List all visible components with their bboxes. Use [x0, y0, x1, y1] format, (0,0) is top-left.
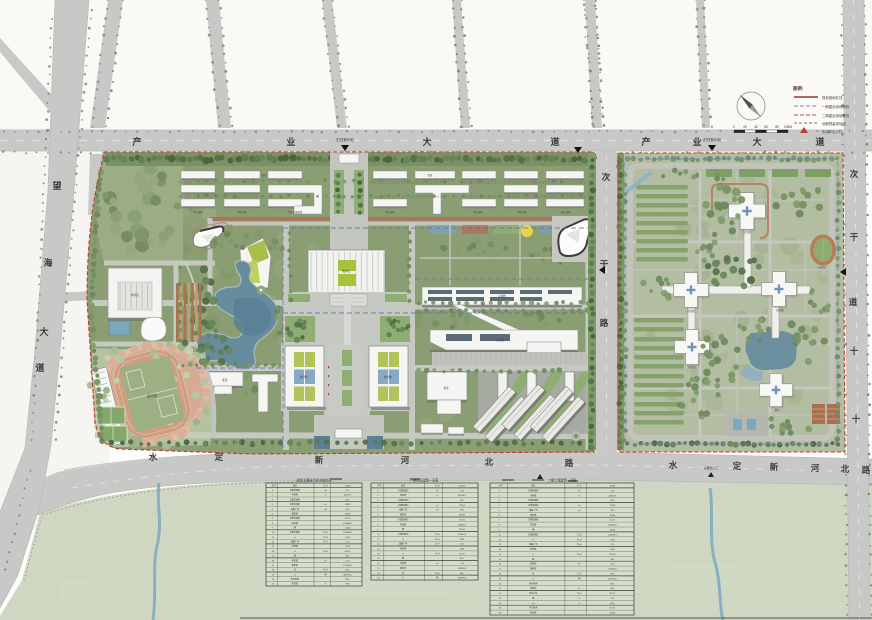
- svg-text:45678.9: 45678.9: [344, 495, 352, 497]
- svg-text:%: %: [436, 495, 438, 497]
- svg-text:食堂: 食堂: [775, 408, 780, 412]
- svg-text:85%: 85%: [460, 573, 464, 575]
- svg-text:北: 北: [841, 464, 850, 474]
- svg-text:m²: m²: [532, 602, 535, 605]
- svg-text:运动场: 运动场: [818, 265, 826, 269]
- svg-text:业: 业: [692, 136, 701, 147]
- svg-text:%: %: [402, 539, 404, 541]
- svg-text:12564: 12564: [459, 505, 466, 507]
- svg-text:路: 路: [600, 318, 609, 328]
- svg-text:宿舍楼: 宿舍楼: [687, 309, 695, 313]
- svg-text:%: %: [325, 495, 327, 497]
- svg-text:万m²: 万m²: [323, 536, 328, 539]
- svg-text:海: 海: [43, 257, 52, 268]
- svg-text:万m²: 万m²: [323, 541, 328, 544]
- svg-text:%: %: [402, 553, 404, 555]
- svg-text:56.2%: 56.2%: [345, 551, 351, 553]
- svg-text:学生宿舍: 学生宿舍: [517, 210, 527, 214]
- svg-text:%: %: [294, 537, 296, 539]
- svg-text:十: 十: [850, 346, 859, 356]
- svg-text:%: %: [578, 598, 580, 600]
- svg-text:56.2%: 56.2%: [609, 554, 615, 556]
- svg-text:(红线宽40米): (红线宽40米): [703, 137, 721, 142]
- svg-text:12564: 12564: [459, 529, 466, 531]
- svg-text:次: 次: [850, 169, 859, 179]
- svg-text:%: %: [532, 554, 534, 556]
- svg-text:35%: 35%: [610, 500, 614, 502]
- svg-text:56.2%: 56.2%: [459, 519, 465, 521]
- svg-text:体育馆: 体育馆: [131, 293, 139, 297]
- svg-text:河: 河: [811, 463, 820, 473]
- svg-text:食堂: 食堂: [443, 386, 449, 390]
- svg-text:12564: 12564: [345, 528, 352, 530]
- svg-text:%: %: [532, 539, 534, 541]
- svg-text:80: 80: [775, 125, 779, 129]
- svg-text:12564: 12564: [610, 613, 617, 615]
- svg-text:万m²: 万m²: [323, 484, 328, 487]
- svg-text:12564: 12564: [610, 515, 617, 517]
- svg-text:大: 大: [752, 136, 761, 147]
- svg-text:%: %: [578, 495, 580, 497]
- svg-text:水: 水: [148, 452, 158, 462]
- svg-text:m²: m²: [324, 508, 327, 511]
- svg-text:万m²: 万m²: [323, 569, 328, 572]
- svg-text:二期建设用地界线: 二期建设用地界线: [822, 113, 850, 118]
- svg-text:85%: 85%: [610, 603, 614, 605]
- svg-text:(红线宽50米): (红线宽50米): [336, 137, 354, 142]
- svg-text:m²: m²: [436, 489, 439, 492]
- svg-text:学生宿舍: 学生宿舍: [237, 210, 247, 214]
- svg-text:%: %: [402, 578, 404, 580]
- svg-text:实验楼: 实验楼: [496, 338, 504, 342]
- svg-text:12564: 12564: [459, 486, 466, 488]
- svg-text:北: 北: [485, 457, 494, 467]
- svg-text:m²: m²: [436, 509, 439, 512]
- svg-text:万m²: 万m²: [435, 543, 440, 546]
- svg-text:35%: 35%: [460, 510, 464, 512]
- svg-text:125648.5: 125648.5: [458, 568, 468, 570]
- svg-text:万m²: 万m²: [323, 531, 328, 534]
- svg-text:河: 河: [401, 455, 410, 465]
- svg-text:85%: 85%: [610, 583, 614, 585]
- svg-text:定: 定: [214, 452, 224, 462]
- svg-text:0: 0: [733, 125, 735, 129]
- svg-text:学生宿舍: 学生宿舍: [385, 210, 395, 214]
- svg-text:%: %: [578, 588, 580, 590]
- svg-text:产: 产: [132, 136, 141, 147]
- svg-text:万m²: 万m²: [435, 552, 440, 555]
- svg-text:12564: 12564: [345, 504, 352, 506]
- svg-text:35%: 35%: [346, 556, 350, 558]
- svg-text:56.2%: 56.2%: [345, 518, 351, 520]
- svg-text:125648.5: 125648.5: [608, 569, 618, 571]
- svg-text:二期工程建筑一览表: 二期工程建筑一览表: [548, 478, 577, 483]
- svg-text:85%: 85%: [346, 579, 350, 581]
- svg-text:一期建设用地界线: 一期建设用地界线: [822, 104, 850, 109]
- svg-text:新: 新: [315, 455, 324, 465]
- svg-text:35%: 35%: [610, 559, 614, 561]
- svg-text:125648.5: 125648.5: [458, 534, 468, 536]
- svg-text:m²: m²: [578, 504, 581, 507]
- svg-text:56.2%: 56.2%: [609, 520, 615, 522]
- svg-text:产: 产: [641, 136, 650, 147]
- svg-text:100M: 100M: [784, 125, 792, 129]
- svg-text:定: 定: [732, 461, 742, 471]
- svg-text:m²: m²: [578, 509, 581, 512]
- svg-text:教工宿舍: 教工宿舍: [561, 210, 571, 214]
- svg-text:万m²: 万m²: [577, 592, 582, 595]
- svg-text:万m²: 万m²: [435, 533, 440, 536]
- svg-text:m²: m²: [578, 489, 581, 492]
- svg-text:万m²: 万m²: [577, 485, 582, 488]
- svg-text:宿舍: 宿舍: [428, 173, 433, 177]
- svg-text:%: %: [532, 578, 534, 580]
- svg-text:万m²: 万m²: [435, 538, 440, 541]
- svg-text:60: 60: [764, 125, 768, 129]
- svg-text:12564: 12564: [610, 486, 617, 488]
- svg-text:%: %: [294, 551, 296, 553]
- svg-text:新: 新: [770, 462, 779, 472]
- svg-text:业: 业: [286, 136, 295, 147]
- svg-text:运动场: 运动场: [147, 393, 158, 398]
- svg-text:规划主要技术经济指标表: 规划主要技术经济指标表: [296, 478, 332, 483]
- svg-text:宿舍楼: 宿舍楼: [776, 308, 784, 312]
- svg-text:万m²: 万m²: [435, 572, 440, 575]
- svg-text:12564: 12564: [610, 530, 617, 532]
- svg-text:学生宿舍: 学生宿舍: [193, 210, 203, 214]
- svg-text:12564: 12564: [459, 515, 466, 517]
- svg-text:大: 大: [422, 136, 431, 147]
- svg-text:万m²: 万m²: [577, 553, 582, 556]
- svg-text:12564: 12564: [345, 514, 352, 516]
- svg-text:45678.9: 45678.9: [458, 495, 466, 497]
- svg-text:规划用地红线: 规划用地红线: [822, 95, 843, 100]
- svg-text:%: %: [294, 574, 296, 576]
- svg-text:宿舍: 宿舍: [262, 173, 267, 177]
- svg-text:路: 路: [565, 458, 574, 468]
- svg-text:45678.9: 45678.9: [609, 495, 617, 497]
- svg-text:万m²: 万m²: [323, 550, 328, 553]
- svg-text:%: %: [578, 603, 580, 605]
- svg-text:学生宿舍: 学生宿舍: [473, 210, 483, 214]
- svg-text:35%: 35%: [346, 584, 350, 586]
- svg-text:干: 干: [850, 232, 859, 242]
- svg-text:m²: m²: [436, 562, 439, 565]
- svg-text:万m²: 万m²: [577, 543, 582, 546]
- svg-text:万m²: 万m²: [577, 573, 582, 576]
- svg-text:教学楼: 教学楼: [384, 375, 392, 379]
- svg-text:道: 道: [815, 136, 824, 147]
- svg-text:20: 20: [743, 125, 747, 129]
- svg-text:远期预留用地线: 远期预留用地线: [822, 121, 846, 126]
- svg-text:125648.5: 125648.5: [608, 534, 618, 536]
- svg-text:m²: m²: [324, 559, 327, 562]
- svg-text:图例:: 图例:: [793, 85, 804, 92]
- svg-text:85%: 85%: [346, 570, 350, 572]
- svg-text:中心: 中心: [211, 237, 217, 241]
- svg-text:m²: m²: [578, 563, 581, 566]
- svg-text:35%: 35%: [346, 509, 350, 511]
- svg-text:458796.2: 458796.2: [458, 578, 468, 580]
- svg-text:35%: 35%: [460, 500, 464, 502]
- svg-text:125648.5: 125648.5: [343, 532, 353, 534]
- svg-text:水: 水: [668, 460, 678, 470]
- svg-text:学生公寓组团: 学生公寓组团: [288, 210, 303, 214]
- svg-text:万m²: 万m²: [435, 485, 440, 488]
- svg-text:56.2%: 56.2%: [609, 593, 615, 595]
- svg-text:主要出入口: 主要出入口: [703, 465, 718, 470]
- svg-text:道: 道: [550, 136, 559, 147]
- svg-text:40: 40: [754, 125, 758, 129]
- svg-text:机动车出入口: 机动车出入口: [822, 129, 842, 134]
- svg-text:35%: 35%: [460, 558, 464, 560]
- svg-text:125648.5: 125648.5: [608, 525, 618, 527]
- svg-text:十: 十: [852, 414, 861, 424]
- svg-text:12564: 12564: [345, 485, 352, 487]
- svg-text:万m²: 万m²: [577, 533, 582, 536]
- svg-text:125648.5: 125648.5: [343, 523, 353, 525]
- svg-text:12564: 12564: [610, 505, 617, 507]
- svg-text:35%: 35%: [346, 499, 350, 501]
- svg-text:458796.2: 458796.2: [343, 574, 353, 576]
- svg-text:大: 大: [39, 326, 48, 337]
- svg-text:图书馆: 图书馆: [342, 269, 350, 273]
- svg-text:次: 次: [602, 172, 611, 182]
- svg-text:35%: 35%: [610, 510, 614, 512]
- svg-text:56.2%: 56.2%: [459, 553, 465, 555]
- svg-text:万m²: 万m²: [577, 538, 582, 541]
- svg-text:m²: m²: [436, 504, 439, 507]
- svg-text:医院: 医院: [222, 378, 228, 382]
- svg-text:%: %: [325, 584, 327, 586]
- svg-text:56.2%: 56.2%: [609, 608, 615, 610]
- svg-text:教学楼: 教学楼: [300, 375, 308, 379]
- svg-text:综合楼: 综合楼: [743, 230, 751, 234]
- svg-text:一期校区建筑一览表: 一期校区建筑一览表: [410, 478, 439, 483]
- svg-text:m²: m²: [324, 503, 327, 506]
- svg-text:实验楼: 实验楼: [498, 294, 506, 298]
- svg-text:35%: 35%: [610, 588, 614, 590]
- svg-text:道: 道: [849, 297, 858, 307]
- svg-text:宿舍楼: 宿舍楼: [688, 365, 696, 369]
- svg-text:m²: m²: [324, 489, 327, 492]
- svg-text:路: 路: [862, 465, 871, 475]
- svg-text:道: 道: [35, 362, 44, 373]
- svg-text:458796.2: 458796.2: [608, 578, 618, 580]
- svg-text:望: 望: [52, 180, 61, 191]
- svg-text:125648.5: 125648.5: [343, 565, 353, 567]
- svg-text:85%: 85%: [610, 574, 614, 576]
- svg-text:125648.5: 125648.5: [458, 524, 468, 526]
